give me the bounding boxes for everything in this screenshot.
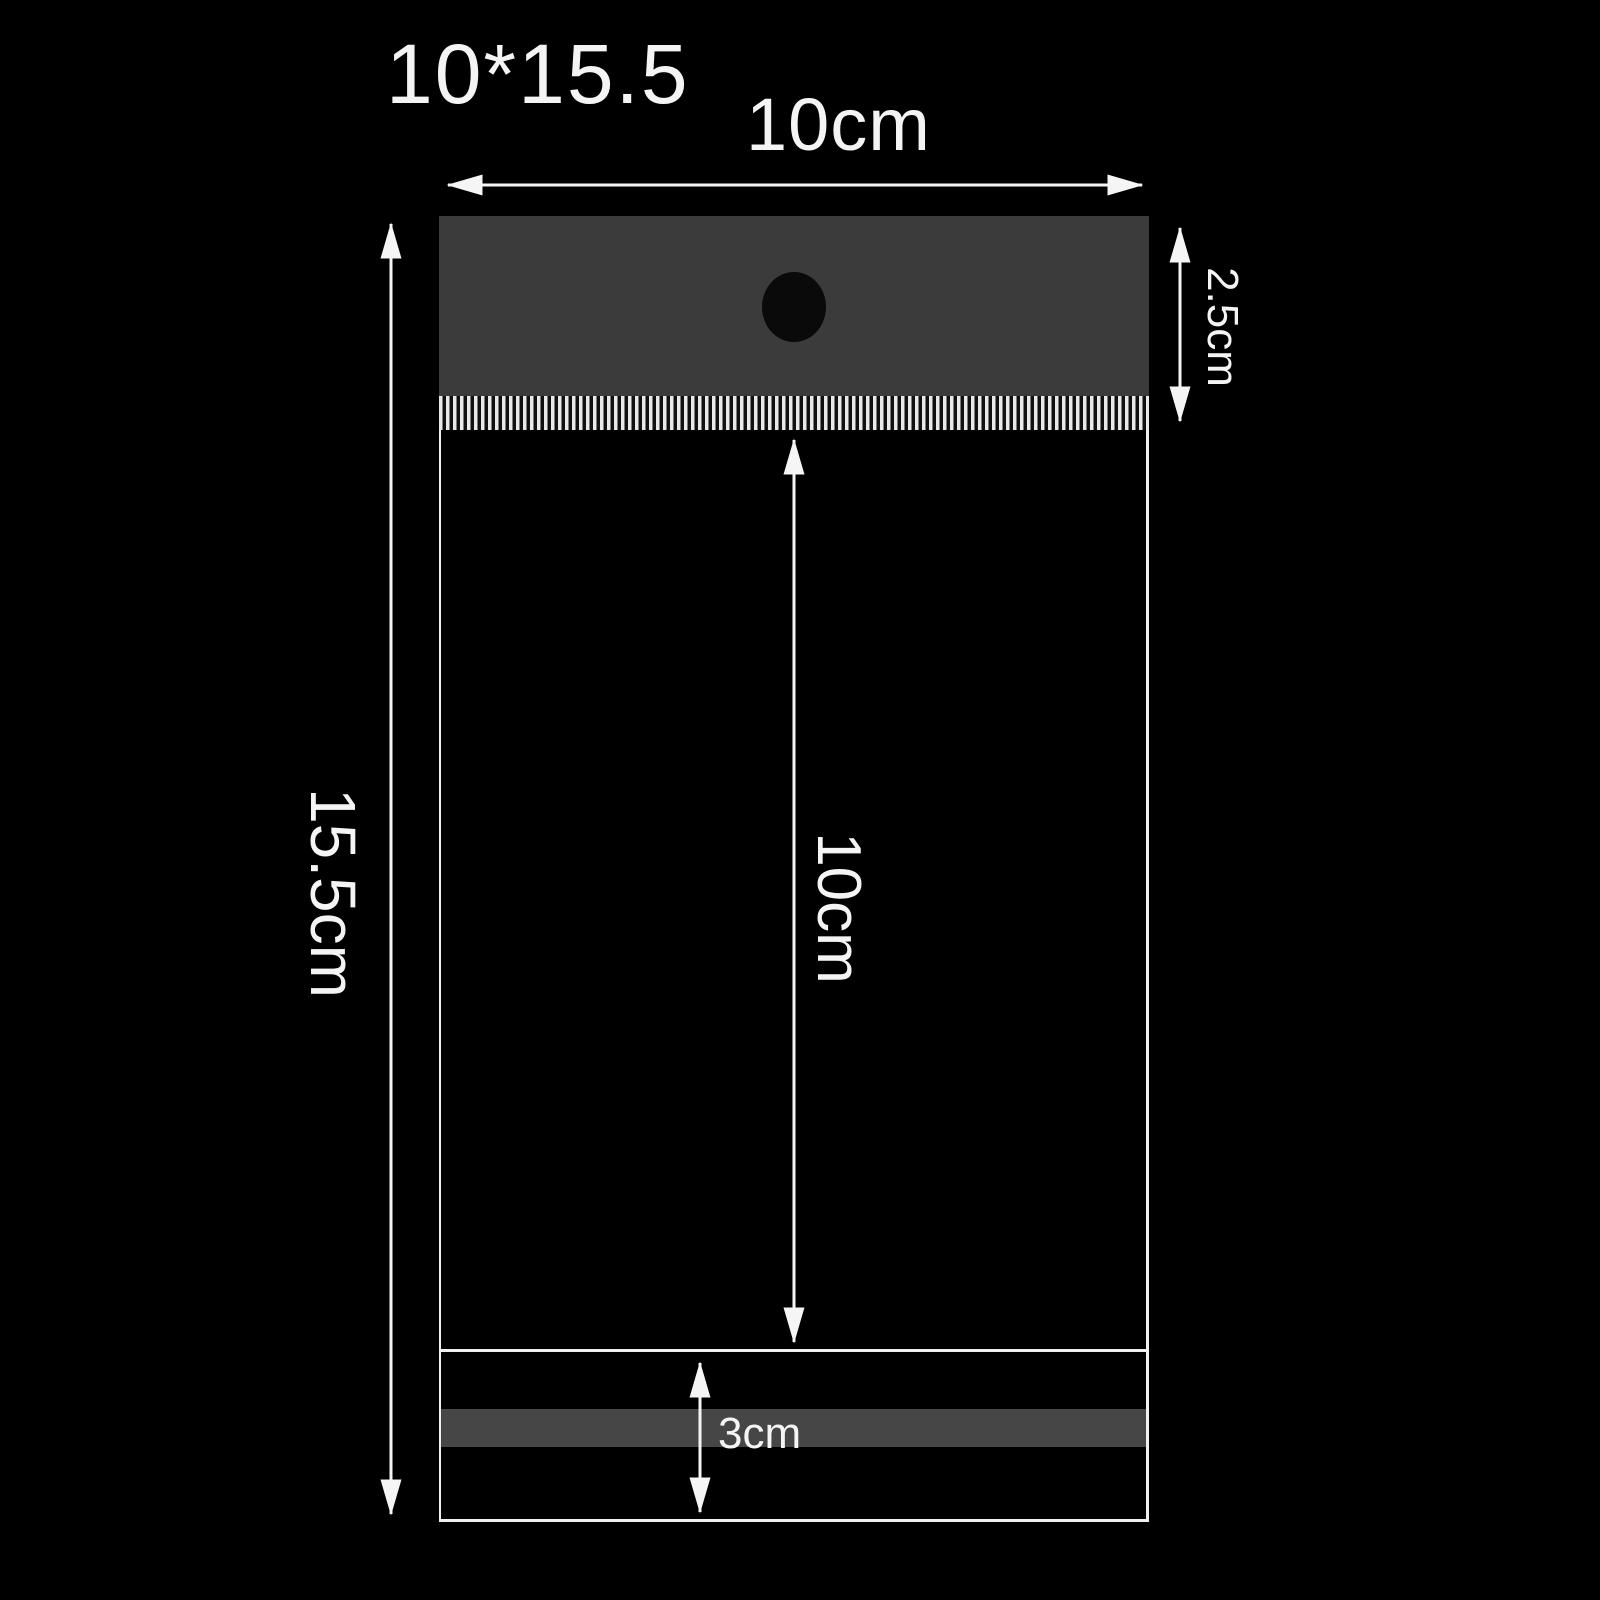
diagram-canvas: 10*15.5 10cm 15.5cm 10cm 2.5cm 3cm — [0, 0, 1600, 1600]
flap-height-dimension-label: 3cm — [718, 1412, 801, 1456]
bottom-seal-line — [441, 1349, 1146, 1352]
hang-hole — [762, 272, 826, 342]
bag-header-flap — [439, 216, 1149, 396]
width-dimension-label: 10cm — [746, 88, 931, 162]
bag-body — [439, 430, 1149, 1522]
total-height-dimension-label: 15.5cm — [301, 788, 365, 998]
serrated-adhesive-strip — [439, 396, 1149, 430]
size-code-label: 10*15.5 — [386, 32, 690, 116]
plastic-bag-illustration — [439, 216, 1149, 1522]
header-height-dimension-label: 2.5cm — [1200, 267, 1244, 387]
